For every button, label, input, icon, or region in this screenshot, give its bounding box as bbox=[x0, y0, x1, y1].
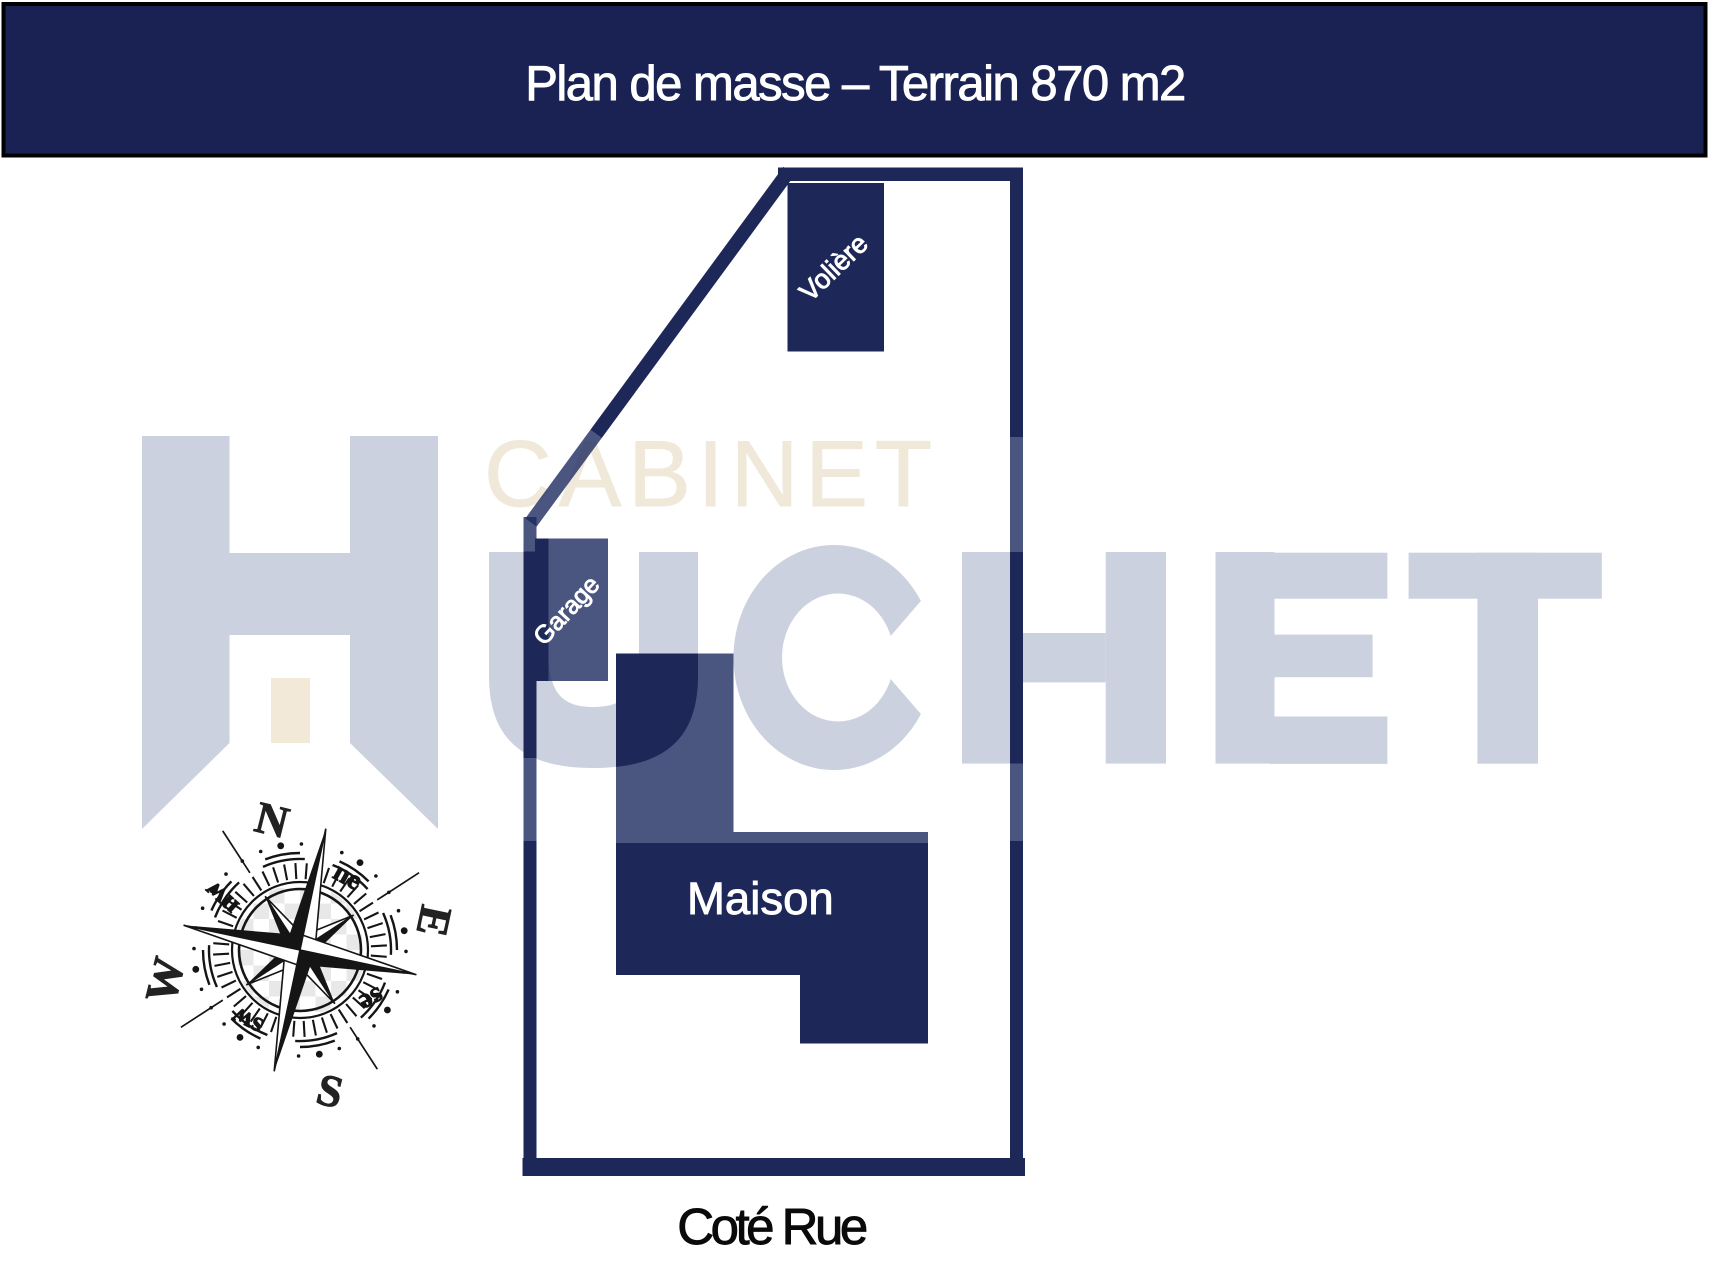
svg-text:E: E bbox=[406, 901, 461, 941]
svg-text:Coté Rue: Coté Rue bbox=[677, 1198, 867, 1255]
svg-text:Maison: Maison bbox=[687, 873, 834, 924]
svg-text:Plan de masse – Terrain 870 m2: Plan de masse – Terrain 870 m2 bbox=[525, 57, 1185, 111]
svg-text:N: N bbox=[250, 792, 294, 848]
svg-text:nw: nw bbox=[197, 875, 245, 923]
svg-text:CABINET: CABINET bbox=[484, 421, 939, 526]
svg-text:S: S bbox=[312, 1064, 348, 1119]
svg-text:W: W bbox=[135, 952, 194, 1008]
